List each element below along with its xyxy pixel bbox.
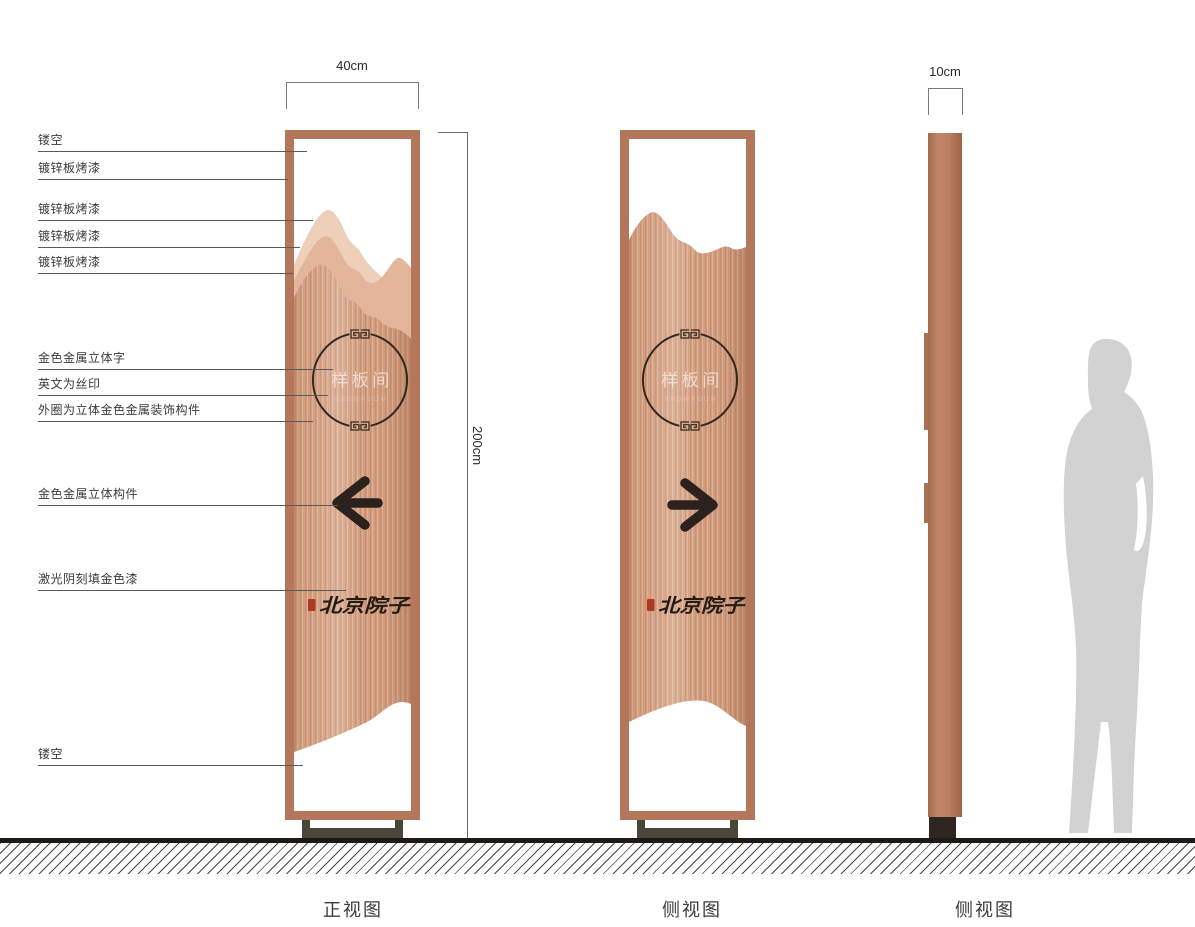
view-title-side-1: 侧视图 xyxy=(662,896,722,922)
callout-hollow-bottom: 镂空 xyxy=(38,747,63,762)
height-dimension-line xyxy=(467,132,468,838)
sign-base-stand xyxy=(620,818,755,840)
front-width-dimension: 40cm xyxy=(336,58,368,73)
callout-english-silkscreen: 英文为丝印 xyxy=(38,377,101,392)
callout-leader-line xyxy=(38,273,293,274)
callout-leader-line xyxy=(38,590,346,591)
room-name-text: 样板间 xyxy=(331,371,393,390)
front-view-sign: 样板间 SHOWROOM 北京院子 xyxy=(285,130,420,820)
callout-galvanized-layer-1: 镀锌板烤漆 xyxy=(38,202,101,217)
ground-hatching xyxy=(0,843,1195,874)
signage-design-drawing: { "dimensions": { "front_width": "40cm",… xyxy=(0,0,1195,927)
callout-galvanized-frame: 镀锌板烤漆 xyxy=(38,161,101,176)
callout-leader-line xyxy=(38,247,300,248)
callout-leader-line xyxy=(38,179,288,180)
callout-gold-metal-3d-component: 金色金属立体构件 xyxy=(38,487,138,502)
callout-laser-engraved-gold: 激光阴刻填金色漆 xyxy=(38,572,138,587)
side-thickness-bracket xyxy=(928,88,963,115)
pillar-base-foot xyxy=(929,814,956,839)
english-subtext: SHOWROOM xyxy=(334,397,387,403)
view-title-front: 正视图 xyxy=(323,896,383,922)
brand-seal xyxy=(308,599,316,611)
callout-leader-line xyxy=(38,395,328,396)
callout-outer-ring-ornament: 外圈为立体金色金属装饰构件 xyxy=(38,403,201,418)
human-silhouette xyxy=(1035,336,1175,839)
brand-seal xyxy=(647,599,655,611)
callout-leader-line xyxy=(38,220,313,221)
brand-calligraphy: 北京院子 xyxy=(319,595,411,617)
height-dimension: 200cm xyxy=(470,426,485,465)
side-view-sign: 样板间 SHOWROOM 北京院子 xyxy=(620,130,755,820)
room-name-text: 样板间 xyxy=(661,371,723,390)
panel-sheen xyxy=(629,212,746,726)
ground-line xyxy=(0,838,1195,843)
callout-galvanized-layer-3: 镀锌板烤漆 xyxy=(38,255,101,270)
side-profile-pillar xyxy=(928,133,962,817)
callout-leader-line xyxy=(38,505,338,506)
callout-leader-line xyxy=(38,421,313,422)
sign-base-stand xyxy=(285,818,420,840)
english-subtext: SHOWROOM xyxy=(664,397,717,403)
callout-leader-line xyxy=(38,369,333,370)
callout-gold-metal-3d-text: 金色金属立体字 xyxy=(38,351,126,366)
height-dimension-tick xyxy=(438,132,467,133)
front-width-bracket xyxy=(286,82,419,109)
brand-calligraphy: 北京院子 xyxy=(658,595,746,617)
side-thickness-dimension: 10cm xyxy=(929,64,961,79)
view-title-side-2: 侧视图 xyxy=(955,896,1015,922)
callout-galvanized-layer-2: 镀锌板烤漆 xyxy=(38,229,101,244)
callout-leader-line xyxy=(38,151,307,152)
callout-leader-line xyxy=(38,765,303,766)
callout-hollow-top: 镂空 xyxy=(38,133,63,148)
